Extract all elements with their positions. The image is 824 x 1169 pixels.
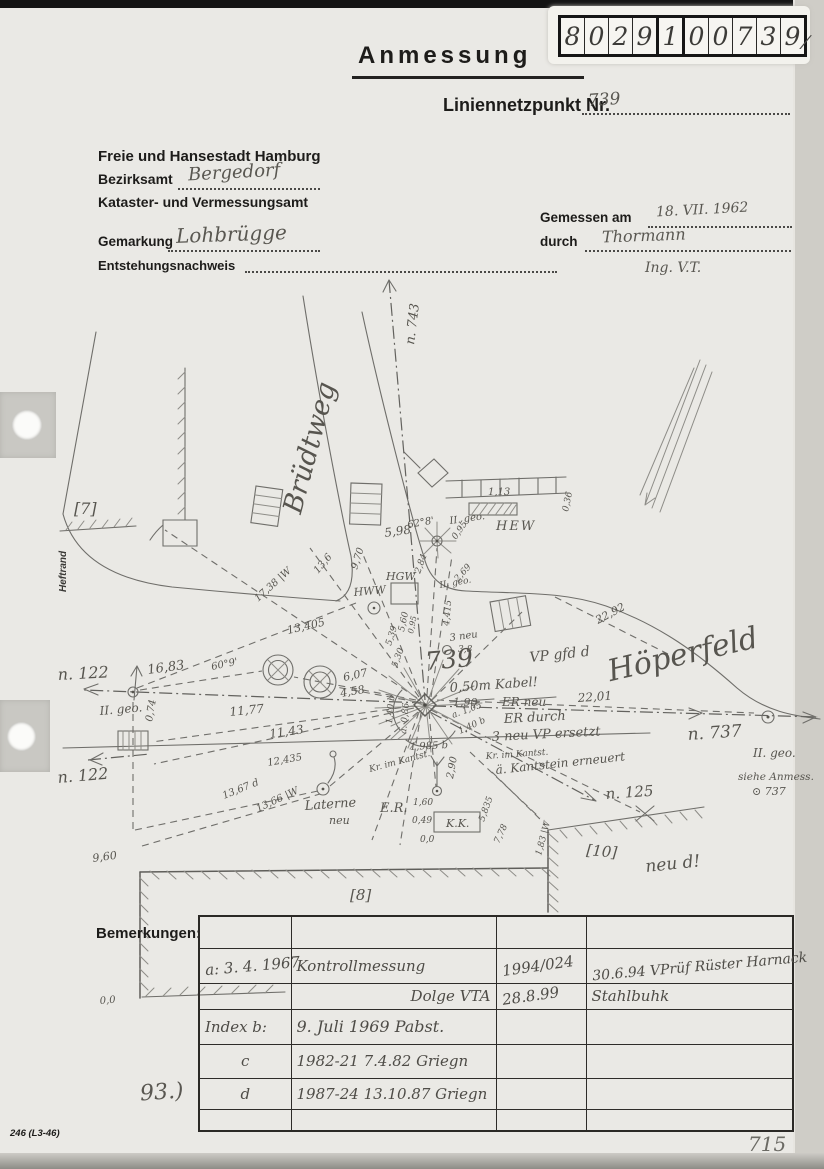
label-960: 9,60 (92, 849, 118, 865)
label-136: 13,6 (312, 551, 335, 576)
label-n122b: n. 122 (57, 764, 109, 787)
street-lines (63, 296, 820, 748)
label-1177: 11,77 (229, 701, 265, 719)
margin-note: 93.) (139, 1079, 184, 1107)
page-number: 715 (748, 1132, 786, 1156)
label-13405: 13,405 (286, 616, 326, 637)
label-hew: HEW (495, 519, 536, 534)
street-name-bruedtweg: Brüdtweg (277, 379, 342, 518)
cell-text: 1994/024 (501, 952, 575, 980)
cell: d (199, 1078, 291, 1109)
label-140b: 1,40 b (457, 715, 487, 736)
cell (496, 1044, 586, 1078)
table-row: a: 3. 4. 1967 Kontrollmessung 1994/024 3… (199, 948, 793, 983)
cell (496, 1009, 586, 1044)
label-er: E.R. (379, 801, 408, 816)
label-hww: HWW (352, 583, 388, 599)
label-geo: II. geo. (752, 746, 796, 760)
table-row: d 1987-24 13.10.87 Griegn (199, 1078, 793, 1109)
label-haus10: [10] (586, 841, 618, 862)
cell-text: Dolge VTA (411, 987, 491, 1005)
label-00b: 0,0 (99, 995, 116, 1007)
label-607: 6,07 (342, 666, 369, 684)
cell: 28.8.99 (496, 983, 586, 1009)
label-183: 1,83 |W (534, 819, 553, 856)
cell-text: a: 3. 4. 1967 (204, 952, 300, 978)
label-n125: n. 125 (605, 782, 654, 803)
cell-text: 1982-21 7.4.82 Griegn (297, 1052, 469, 1070)
label-1366: 13,66 |W (255, 785, 301, 814)
cell: 1987-24 13.10.87 Griegn (291, 1078, 496, 1109)
cell: a: 3. 4. 1967 (199, 948, 291, 983)
label-5835: 5,835 (477, 795, 495, 823)
cell (199, 916, 291, 948)
remarks-table: a: 3. 4. 1967 Kontrollmessung 1994/024 3… (198, 915, 794, 1132)
cell (586, 1078, 793, 1109)
label-049: 0,49 (412, 816, 432, 826)
cell (199, 983, 291, 1009)
cell (586, 1009, 793, 1044)
label-neu-d: neu d! (644, 851, 701, 877)
label-heftrand: Heftrand (58, 550, 69, 592)
cell (586, 916, 793, 948)
cell (291, 1109, 496, 1131)
label-geo: II. geo. (98, 700, 143, 718)
cell: 30.6.94 VPrüf Rüster Harnack (586, 948, 793, 983)
remarks-label: Bemerkungen: (96, 925, 201, 942)
label-38: 3,8 (458, 645, 473, 655)
label-1143: 11,43 (268, 722, 304, 741)
label-kr-kantst-b: Kr. im Kantst. (367, 749, 431, 775)
label-haus8: [8] (350, 886, 371, 904)
label-074: 0,74 (144, 699, 159, 723)
cell-text: Kontrollmessung (297, 957, 426, 975)
label-2292: 22,92 (592, 600, 627, 627)
label-539: 5,39 (384, 625, 400, 647)
cell (199, 1109, 291, 1131)
scanned-survey-form: 8 0 2 9 1 0 0 7 3 9 ∕ Anmessung Linienne… (0, 0, 824, 1169)
table-row (199, 1109, 793, 1131)
label-kabel: 0,50m Kabel! (449, 675, 538, 696)
form-number: 246 (L3-46) (10, 1128, 60, 1139)
label-siehe-737: ⊙ 737 (752, 785, 786, 798)
cell (586, 1109, 793, 1131)
cell-text: 28.8.99 (501, 983, 560, 1009)
table-row: Dolge VTA 28.8.99 Stahlbuhk (199, 983, 793, 1009)
cell-text: Stahlbuhk (592, 987, 670, 1005)
label-458: 4,58 (338, 683, 365, 700)
label-036: 0,36 (561, 491, 575, 513)
cell: Stahlbuhk (586, 983, 793, 1009)
label-n743: n. 743 (403, 303, 423, 346)
label-778: 7,78 (493, 823, 511, 846)
label-1738: 17,38 |W (253, 565, 295, 604)
label-00: 0,0 (420, 835, 435, 845)
label-530: 5,30 (390, 647, 406, 670)
cell (496, 916, 586, 948)
cell: Index b: (199, 1009, 291, 1044)
label-3neu: 3 neu (449, 629, 479, 644)
cell-text: 1987-24 13.10.87 Griegn (297, 1085, 488, 1103)
label-12435: 12,435 (267, 752, 303, 769)
label-a086: a. 0,86 (399, 702, 412, 734)
cell: 1982-21 7.4.82 Griegn (291, 1044, 496, 1078)
cell: 1994/024 (496, 948, 586, 983)
label-n122: n. 122 (57, 662, 109, 684)
label-290: 2,90 (445, 755, 460, 780)
label-geo: II. geo. (438, 576, 472, 592)
label-4415: 4,415 (442, 599, 454, 627)
label-kk: K.K. (445, 817, 469, 830)
cell-text: 30.6.94 VPrüf Rüster Harnack (591, 949, 807, 984)
label-140a: 1,40 b (385, 695, 397, 725)
label-vp-gfd: VP gfd d (529, 644, 591, 666)
cell (496, 1109, 586, 1131)
cell: c (199, 1044, 291, 1078)
sketch-labels: Brüdtweg Höperfeld n. 743 n. 122 16,83 I… (57, 303, 814, 1007)
label-1985: 1,985 b (410, 740, 449, 753)
table-row: Index b: 9. Juli 1969 Pabst. (199, 1009, 793, 1044)
label-er-neu-struck: ER neu (501, 695, 546, 709)
label-laterne: Laterne (303, 795, 357, 814)
label-6208: 62°8' (407, 515, 435, 530)
label-1367: 13,67 d (221, 777, 261, 802)
cell-text: 9. Juli 1969 Pabst. (297, 1017, 445, 1036)
label-haus7: [7] (74, 499, 97, 518)
cell (586, 1044, 793, 1078)
cell-text: Index b: (205, 1018, 267, 1036)
table-row: c 1982-21 7.4.82 Griegn (199, 1044, 793, 1078)
label-160: 1,60 (413, 798, 433, 808)
cell: Dolge VTA (291, 983, 496, 1009)
label-113: 1,13 (488, 487, 510, 498)
street-name-hoeperfeld: Höperfeld (603, 620, 761, 689)
cell-text: c (241, 1052, 249, 1070)
table-row (199, 916, 793, 948)
cell: Kontrollmessung (291, 948, 496, 983)
label-er-durch: ER durch (502, 709, 566, 727)
label-laterne-neu: neu (329, 814, 350, 827)
cell-text: d (240, 1085, 250, 1103)
cell (496, 1078, 586, 1109)
label-siehe-anmess: siehe Anmess. (738, 771, 814, 783)
label-2201: 22,01 (576, 689, 612, 705)
cell (291, 916, 496, 948)
label-vp-ersetzt: 3 neu VP ersetzt (491, 724, 601, 745)
label-284: 2,84 (413, 553, 430, 576)
label-n122-dist: 16,83 (146, 658, 185, 678)
label-609: 60°9' (210, 657, 239, 673)
label-n737: n. 737 (687, 721, 743, 745)
cell: 9. Juli 1969 Pabst. (291, 1009, 496, 1044)
